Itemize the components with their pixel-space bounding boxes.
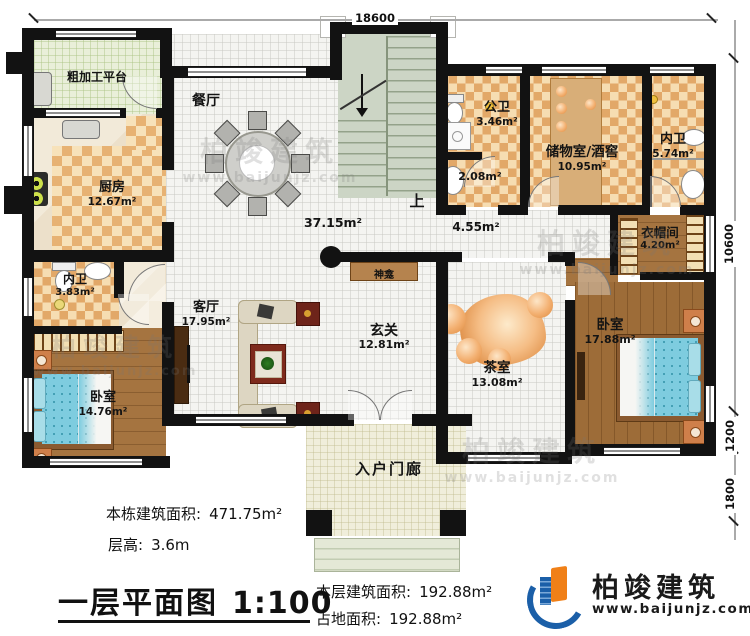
wall-segment	[565, 300, 575, 452]
kitchen-name: 厨房	[88, 181, 137, 196]
foyer-name: 玄关	[358, 323, 409, 339]
room-label-kitchen: 厨房 12.67m²	[88, 181, 137, 208]
dimension-right-lower-label: 1800	[723, 475, 737, 513]
stairs-up-label: 上	[409, 193, 424, 210]
brand-name: 柏竣建筑	[592, 566, 720, 605]
pillow	[688, 380, 701, 413]
wine-light	[556, 86, 567, 97]
wall-segment	[680, 205, 716, 215]
room-label-ensuite-left: 内卫 3.83m²	[55, 273, 94, 298]
tv	[187, 345, 190, 383]
room-label-wc-annex: 2.08m²	[458, 171, 501, 184]
room-label-storage: 储物室/酒窖 10.95m²	[546, 145, 618, 173]
room-label-public-wc: 公卫 3.46m²	[476, 101, 517, 128]
bedroom-left-name: 卧室	[79, 391, 128, 406]
window	[705, 216, 715, 272]
porch-name: 入户门廊	[355, 461, 423, 478]
dining-name: 餐厅	[192, 93, 220, 109]
bedroom-left-area: 14.76m²	[79, 406, 128, 418]
room-label-tea-room: 茶室 13.08m²	[471, 361, 522, 389]
foyer-area: 12.81m²	[358, 339, 409, 352]
window	[650, 66, 694, 74]
dining-table-center	[239, 145, 275, 181]
wall-segment	[436, 252, 462, 262]
wall-segment	[412, 414, 472, 426]
shower-drain	[452, 131, 463, 142]
porch-pillar	[440, 510, 466, 536]
wardrobe-right	[686, 214, 704, 274]
room-label-open-space: 37.15m²	[304, 216, 362, 230]
room-label-corridor: 4.55m²	[452, 221, 499, 235]
dimension-line-right	[734, 20, 736, 540]
wall-segment	[498, 205, 528, 215]
room-label-porch: 入户门廊	[355, 461, 423, 478]
dimension-right-upper-label: 10600	[722, 221, 736, 267]
bedroom-right-area: 17.88m²	[584, 334, 635, 347]
dimension-top-label: 18600	[352, 11, 398, 25]
room-label-ensuite-right: 内卫 5.74m²	[652, 133, 693, 160]
open-space-area: 37.15m²	[304, 216, 362, 230]
storage-area: 10.95m²	[546, 161, 618, 173]
wc-annex-area: 2.08m²	[458, 171, 501, 184]
floor-height-label: 层高:	[108, 536, 143, 554]
site-area-row: 占地面积:192.88m²	[316, 608, 462, 629]
window	[196, 416, 286, 424]
storage-name: 储物室/酒窖	[546, 145, 618, 161]
window	[23, 126, 33, 176]
pillow	[33, 411, 46, 442]
floor-plan-sheet: 神龛	[0, 0, 750, 636]
window	[705, 386, 715, 422]
ensuite-right-area: 5.74m²	[652, 148, 693, 160]
stairs-divider	[386, 36, 388, 196]
cloakroom-area: 4.20m²	[640, 240, 679, 252]
plan-title: 一层平面图	[58, 586, 218, 621]
cloakroom-name: 衣帽间	[640, 226, 679, 240]
ensuite-left-name: 内卫	[55, 273, 94, 287]
floor-area-value: 192.88m²	[419, 583, 492, 601]
wall-segment	[330, 22, 342, 80]
room-label-living: 客厅 17.95m²	[182, 301, 231, 328]
wall-segment	[156, 108, 170, 118]
shrine-shelf: 神龛	[350, 262, 418, 281]
round-column	[320, 246, 342, 268]
bed-blanket	[620, 338, 655, 416]
wall-segment	[440, 152, 482, 160]
room-label-dining: 餐厅	[192, 93, 220, 109]
stairs-arrow-head	[356, 108, 368, 117]
dimension-right-middle-label: 1200	[723, 417, 737, 455]
wall-segment	[610, 215, 618, 275]
wardrobe-left	[620, 218, 638, 274]
ensuite-left-area: 3.83m²	[55, 287, 94, 299]
wine-light	[556, 121, 567, 132]
porch-steps	[314, 538, 460, 572]
wall-segment	[436, 75, 448, 210]
window	[56, 30, 136, 38]
kitchen-floor-ext	[126, 116, 166, 150]
total-area-row: 本栋建筑面积:471.75m²	[106, 503, 282, 524]
tea-room-area: 13.08m²	[471, 377, 522, 390]
sofa-cushion	[257, 304, 274, 320]
plan-title-row: 一层平面图1:100	[58, 578, 333, 622]
room-label-bedroom-right: 卧室 17.88m²	[584, 318, 635, 346]
pillow	[688, 343, 701, 376]
wall-segment	[558, 205, 650, 215]
toilet	[446, 102, 463, 124]
dining-chair	[205, 154, 224, 173]
flue-bump	[4, 186, 24, 214]
floor-area-label: 本层建筑面积:	[316, 583, 411, 601]
pillow	[33, 378, 46, 409]
logo-building-blue	[540, 577, 551, 605]
dining-chair	[248, 111, 267, 130]
site-area-label: 占地面积:	[316, 610, 381, 628]
flue-bump	[6, 52, 24, 74]
dimension-tick	[706, 13, 717, 24]
room-label-foyer: 玄关 12.81m²	[358, 323, 409, 352]
window	[468, 454, 540, 462]
public-wc-area: 3.46m²	[476, 116, 517, 128]
plant	[261, 357, 274, 370]
side-table	[296, 302, 320, 326]
dining-set	[206, 112, 306, 212]
wall-segment	[330, 252, 436, 262]
room-label-cloakroom: 衣帽间 4.20m²	[640, 226, 679, 252]
room-label-bedroom-left: 卧室 14.76m²	[79, 391, 128, 418]
dimension-tick	[28, 13, 39, 24]
stairs-up: 上	[409, 193, 424, 210]
dining-chair	[248, 197, 267, 216]
stairs-treads	[388, 36, 436, 194]
wall-segment	[162, 302, 174, 420]
dining-chair	[291, 154, 310, 173]
bedroom-right-name: 卧室	[584, 318, 635, 334]
wall-segment	[436, 205, 466, 215]
window	[542, 66, 606, 74]
window	[23, 378, 33, 432]
wall-segment	[114, 260, 124, 298]
sink	[681, 170, 705, 199]
floor-height-value: 3.6m	[151, 536, 189, 554]
living-name: 客厅	[182, 301, 231, 316]
kitchen-area: 12.67m²	[88, 196, 137, 208]
porch-pillar	[306, 510, 332, 536]
stairs-treads-lower	[338, 120, 388, 196]
wall-segment	[640, 272, 704, 280]
wall-segment	[22, 326, 122, 334]
ensuite-right-name: 内卫	[652, 133, 693, 148]
window	[46, 109, 120, 117]
floor-height-row: 层高:3.6m	[108, 534, 190, 555]
shrine-label: 神龛	[374, 270, 394, 281]
wall-segment	[22, 250, 174, 262]
bedroom-dresser	[577, 352, 585, 400]
logo-building-orange	[551, 566, 567, 602]
brand-website: www.baijunjz.com	[592, 601, 750, 617]
title-underline	[58, 620, 310, 623]
living-area: 17.95m²	[182, 316, 231, 328]
kitchen-sink	[62, 120, 100, 139]
site-area-value: 192.88m²	[389, 610, 462, 628]
total-area-label: 本栋建筑面积:	[106, 505, 201, 523]
wall-segment	[520, 75, 530, 207]
coffee-table	[250, 344, 286, 384]
public-wc-name: 公卫	[476, 101, 517, 116]
window	[23, 278, 33, 316]
side-table-decor	[304, 310, 311, 317]
room-label-platform: 粗加工平台	[67, 71, 127, 85]
wall-segment	[565, 252, 575, 266]
corridor-area: 4.55m²	[452, 221, 499, 235]
window	[188, 67, 306, 77]
window	[604, 447, 680, 455]
wall-segment	[162, 66, 174, 170]
stairs-arrow-line	[361, 74, 363, 110]
floor-area-row: 本层建筑面积:192.88m²	[316, 581, 492, 602]
wine-light	[556, 103, 567, 114]
tea-room-name: 茶室	[471, 361, 522, 377]
floor-drain	[54, 299, 65, 310]
brand-logo-icon	[527, 565, 587, 623]
wine-light	[585, 99, 596, 110]
wall-segment	[436, 256, 448, 464]
platform-name: 粗加工平台	[67, 71, 127, 85]
window	[486, 66, 522, 74]
rock-sphere	[527, 292, 553, 318]
total-area-value: 471.75m²	[209, 505, 282, 523]
window	[50, 458, 142, 466]
